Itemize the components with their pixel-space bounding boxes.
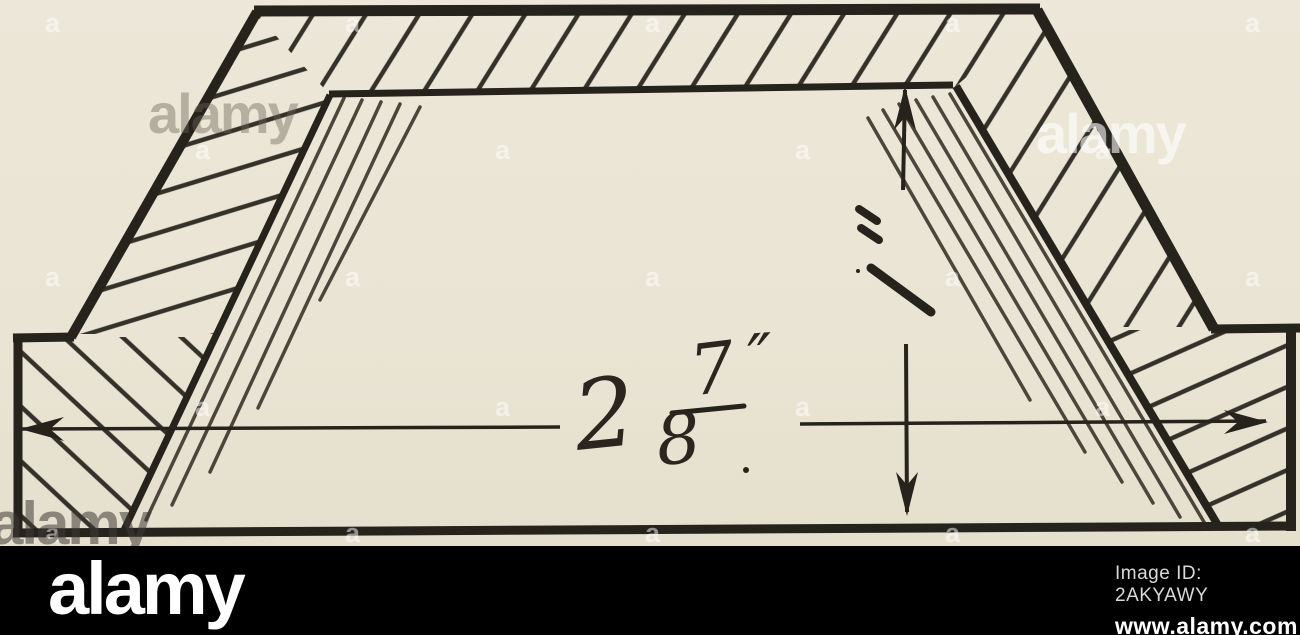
width-dim-line-left xyxy=(22,427,560,429)
image-id-block: Image ID: 2AKYAWY www.alamy.com xyxy=(1115,563,1300,635)
label-period xyxy=(743,467,749,473)
image-id-text: Image ID: 2AKYAWY xyxy=(1115,563,1300,607)
alamy-url-text: www.alamy.com xyxy=(1115,613,1300,635)
technical-drawing xyxy=(0,0,1300,635)
hand-mark xyxy=(859,209,877,221)
hand-mark xyxy=(861,228,879,240)
dimension-inch-mark: ″ xyxy=(746,325,775,393)
hand-mark xyxy=(871,268,931,312)
alamy-bar: alamy Image ID: 2AKYAWY www.alamy.com xyxy=(0,546,1300,635)
alamy-logo: alamy xyxy=(48,552,243,626)
ink-speck xyxy=(856,269,860,273)
dimension-whole-number: 2 xyxy=(569,363,640,465)
outer-top-edge xyxy=(254,9,1040,11)
bottom-edge xyxy=(13,526,1293,533)
stock-photo-page: 2 7 8 ″ aaaaaaaaaaaaaaaaaaaaaaaalamyalam… xyxy=(0,0,1300,635)
dimension-fraction-denominator: 8 xyxy=(652,402,704,476)
